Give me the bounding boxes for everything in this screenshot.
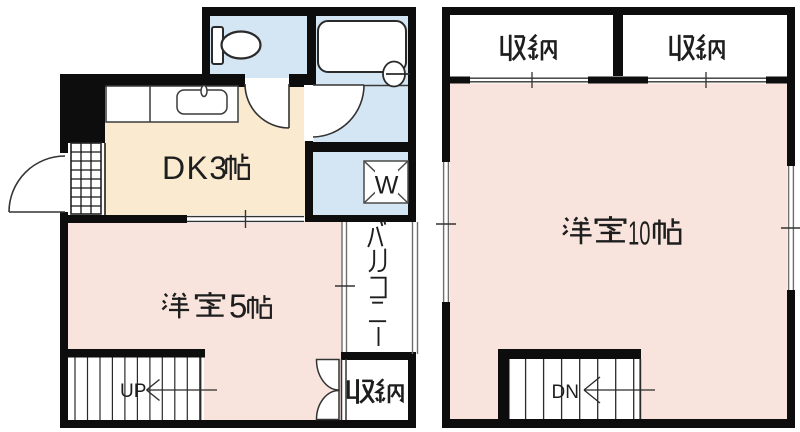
svg-text:UP: UP [120, 381, 146, 402]
svg-text:10: 10 [628, 215, 651, 252]
svg-text:5: 5 [229, 288, 247, 325]
svg-text:W: W [375, 172, 399, 200]
svg-text:DN: DN [552, 382, 579, 403]
svg-text:DK3: DK3 [162, 150, 227, 186]
